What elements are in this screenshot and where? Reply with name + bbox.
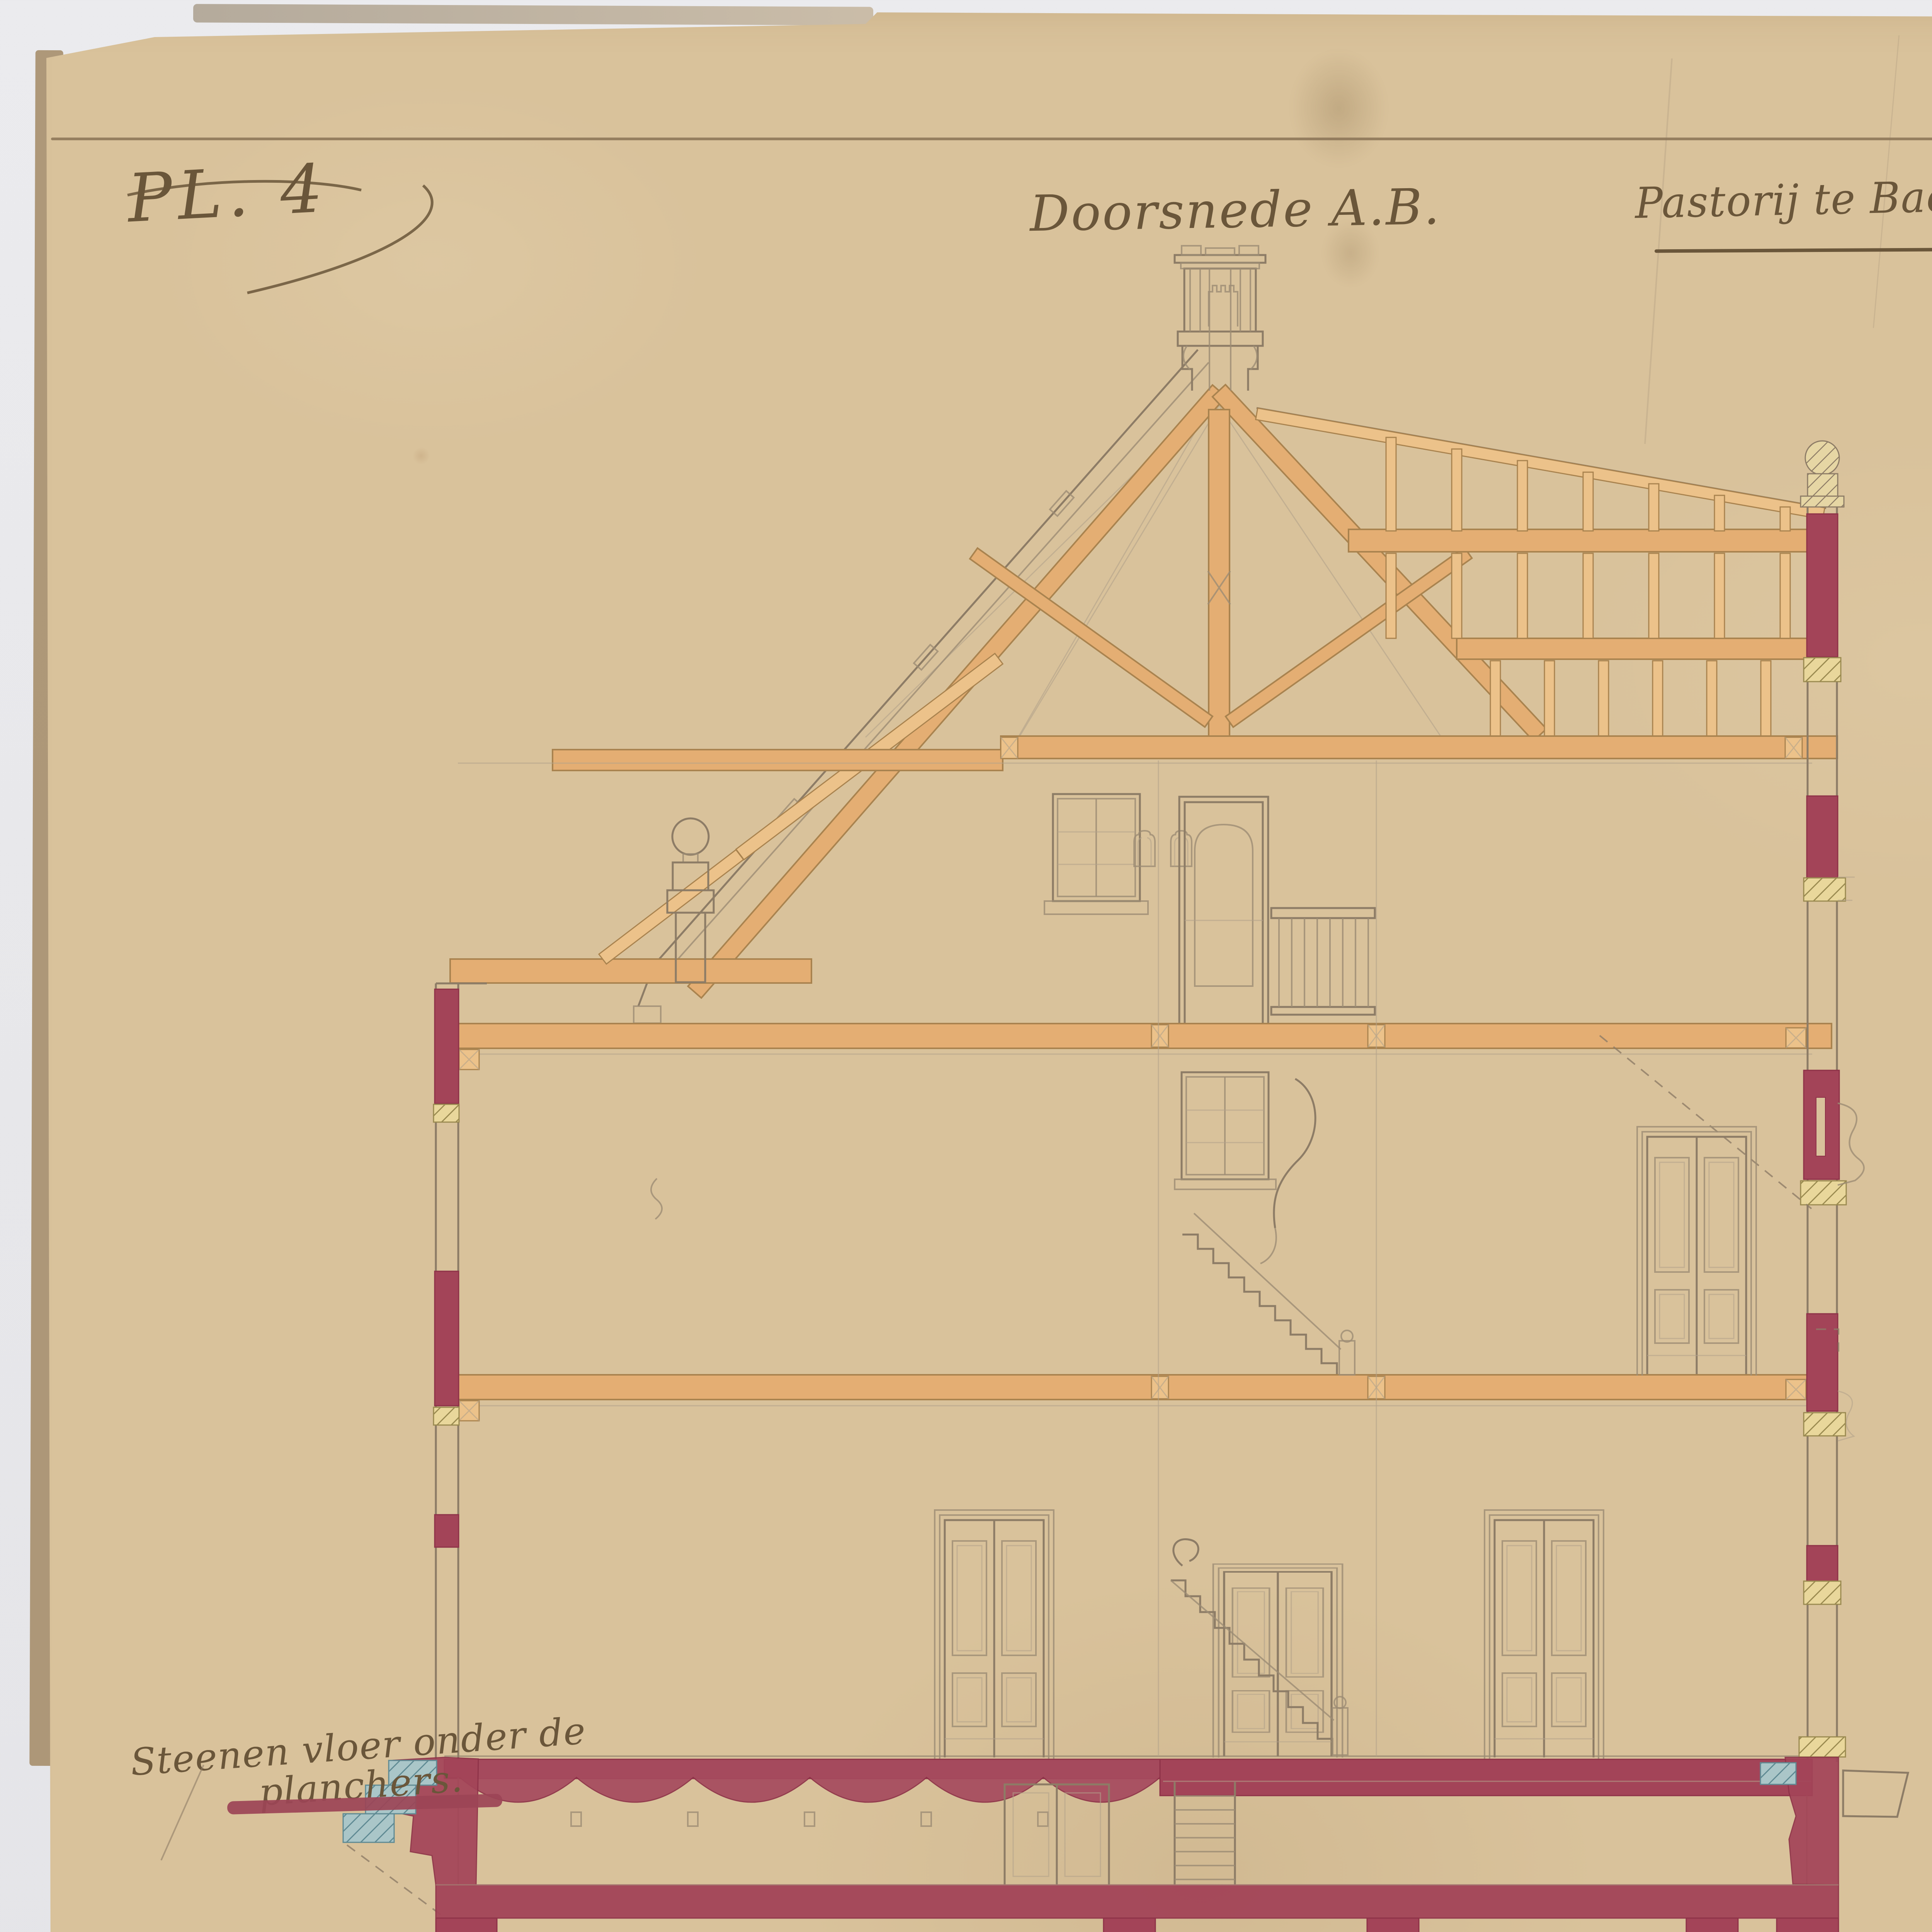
doors-group [935, 1127, 1756, 1759]
basement-group [444, 1759, 1812, 1885]
plate-label: PL. 4 [126, 150, 330, 238]
staircase-group [1158, 760, 1376, 1757]
attic-group [1044, 794, 1192, 914]
section-drawing [0, 0, 1932, 1932]
roof-truss-group [450, 350, 1826, 1023]
section-title: Doorsnede A.B. [1029, 178, 1442, 243]
chimney-group [1175, 246, 1265, 391]
scanned-drawing-page: { "document_type": "hand-drawn architect… [0, 0, 1932, 1932]
